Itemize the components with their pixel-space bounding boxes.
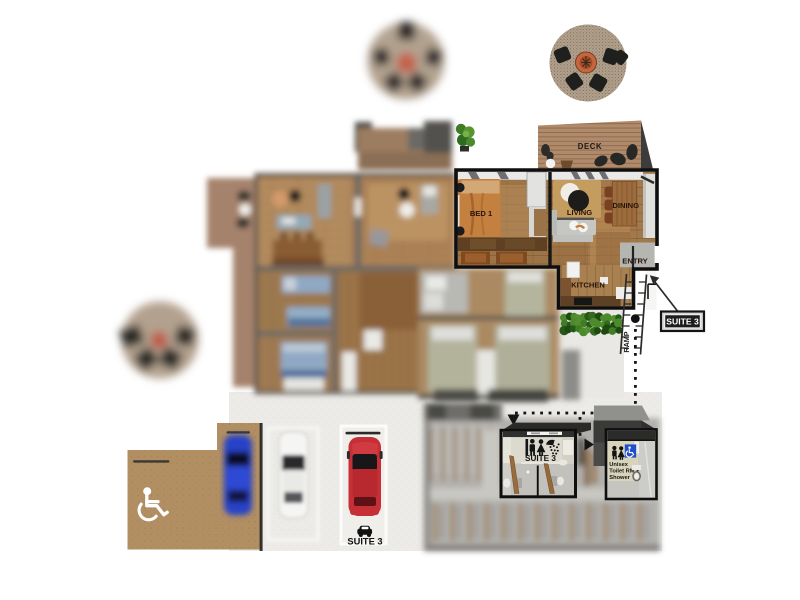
svg-text:DECK: DECK xyxy=(578,142,603,151)
svg-text:DINING: DINING xyxy=(612,201,639,210)
svg-text:RAMP: RAMP xyxy=(622,331,631,352)
svg-text:ENTRY: ENTRY xyxy=(622,256,647,265)
svg-text:BED 1: BED 1 xyxy=(470,209,493,218)
svg-text:LIVING: LIVING xyxy=(567,208,592,217)
svg-text:Shower: Shower xyxy=(609,475,630,481)
svg-text:Unisex: Unisex xyxy=(609,462,628,468)
svg-text:KITCHEN: KITCHEN xyxy=(571,280,605,289)
svg-text:SUITE 3: SUITE 3 xyxy=(347,537,382,547)
svg-text:SUITE 3: SUITE 3 xyxy=(666,317,699,327)
